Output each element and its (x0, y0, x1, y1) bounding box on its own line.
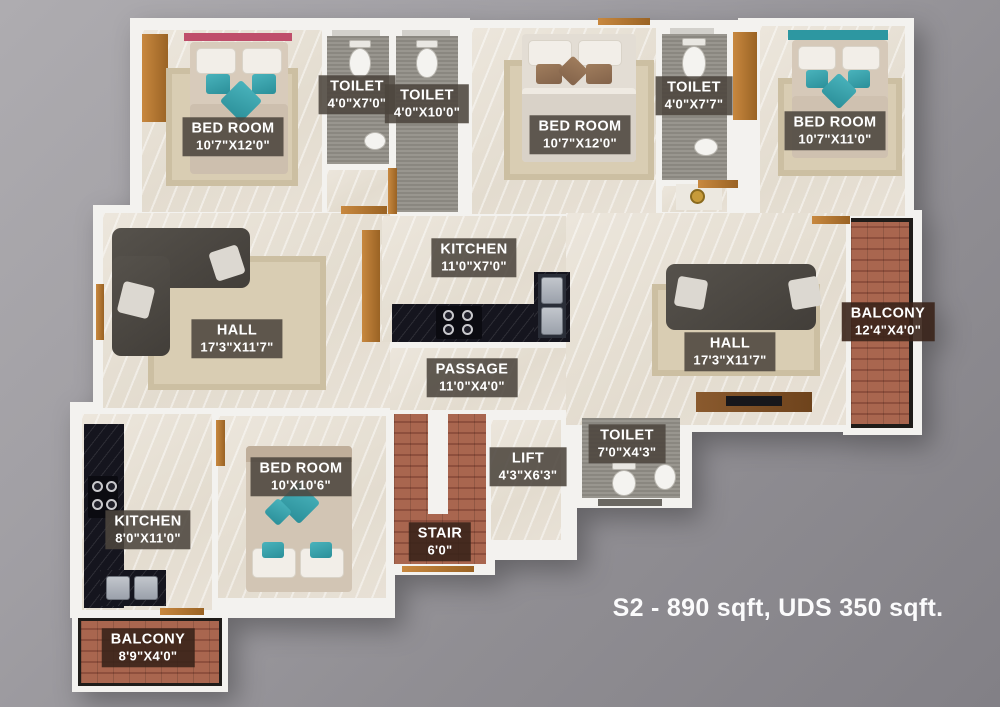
stair-divider (428, 414, 448, 514)
toilet-tank (349, 40, 371, 48)
door-balcony-right (812, 216, 850, 224)
door-hall-right (698, 180, 738, 188)
label-bedroom-tr: BED ROOM 10'7"X11'0" (785, 111, 886, 150)
label-stair: STAIR 6'0" (409, 522, 471, 561)
label-bedroom-tl: BED ROOM 10'7"X12'0" (183, 117, 284, 156)
sofa-cushion (674, 276, 709, 311)
towel-rail (332, 30, 380, 36)
bath-mat (598, 499, 662, 506)
stove-burner (462, 310, 473, 321)
headboard-strip-bedroom-tr (788, 30, 888, 40)
toilet-bowl (682, 46, 706, 80)
teal-cushion (262, 542, 284, 558)
toilet-bowl (612, 470, 636, 496)
stove-burner (106, 499, 117, 510)
label-bedroom-b: BED ROOM 10'X10'6" (251, 457, 352, 496)
stair-threshold (402, 566, 474, 572)
label-toilet-3: TOILET 4'0"X7'7" (656, 76, 733, 115)
label-toilet-4: TOILET 7'0"X4'3" (589, 424, 666, 463)
label-kitchen-bl: KITCHEN 8'0"X11'0" (105, 510, 190, 549)
label-lift: LIFT 4'3"X6'3" (490, 447, 567, 486)
door-bedroom-b (216, 420, 225, 466)
window-lintel (598, 18, 650, 25)
towel-rail (402, 30, 450, 36)
label-hall-left: HALL 17'3"X11'7" (191, 319, 282, 358)
washbasin (694, 138, 718, 156)
stove-burner (443, 310, 454, 321)
label-balcony-bottom: BALCONY 8'9"X4'0" (102, 628, 195, 667)
stove (436, 306, 482, 339)
label-kitchen-center: KITCHEN 11'0"X7'0" (431, 238, 516, 277)
refrigerator-door (541, 307, 563, 335)
accent-cushion (586, 64, 612, 84)
pillow (842, 46, 880, 70)
kitchen-sink (106, 576, 130, 600)
toilet-bowl (416, 48, 438, 78)
gold-washbasin (690, 189, 705, 204)
wardrobe-bedroom-tl (142, 34, 168, 122)
pillow (798, 46, 836, 70)
kitchen-sink (134, 576, 158, 600)
stove-burner (92, 499, 103, 510)
towel-rail (670, 28, 714, 34)
toilet-tank (416, 40, 438, 48)
label-hall-right: HALL 17'3"X11'7" (684, 332, 775, 371)
headboard-strip-bedroom-tl (184, 33, 292, 41)
door-balcony-bottom (160, 608, 204, 615)
plan-caption: S2 - 890 sqft, UDS 350 sqft. (608, 594, 948, 623)
pillow (242, 48, 282, 74)
label-bedroom-tm: BED ROOM 10'7"X12'0" (530, 115, 631, 154)
refrigerator-door (541, 277, 563, 304)
pillow (578, 40, 622, 66)
floor-plan-stage: BED ROOM 10'7"X12'0" TOILET 4'0"X7'0" TO… (0, 0, 1000, 707)
pillow (196, 48, 236, 74)
teal-cushion (252, 74, 276, 94)
stove-burner (462, 324, 473, 335)
door-hall-left (96, 284, 104, 340)
accent-cushion (536, 64, 562, 84)
label-passage: PASSAGE 11'0"X4'0" (427, 358, 518, 397)
washbasin (364, 132, 386, 150)
toilet-tank (682, 38, 706, 46)
door-corridor (388, 168, 397, 214)
toilet-bowl (349, 48, 371, 78)
washbasin (654, 464, 676, 490)
stove-burner (106, 481, 117, 492)
label-toilet-2: TOILET 4'0"X10'0" (385, 84, 469, 123)
door-hall-entry (341, 206, 387, 214)
sofa-cushion (788, 276, 823, 311)
teal-cushion (206, 74, 230, 94)
tv (726, 396, 782, 406)
tall-cabinet (362, 230, 380, 342)
stove-burner (443, 324, 454, 335)
teal-cushion (310, 542, 332, 558)
label-balcony-right: BALCONY 12'4"X4'0" (842, 302, 935, 341)
stove-burner (92, 481, 103, 492)
wardrobe-bedroom-tr (733, 32, 757, 120)
